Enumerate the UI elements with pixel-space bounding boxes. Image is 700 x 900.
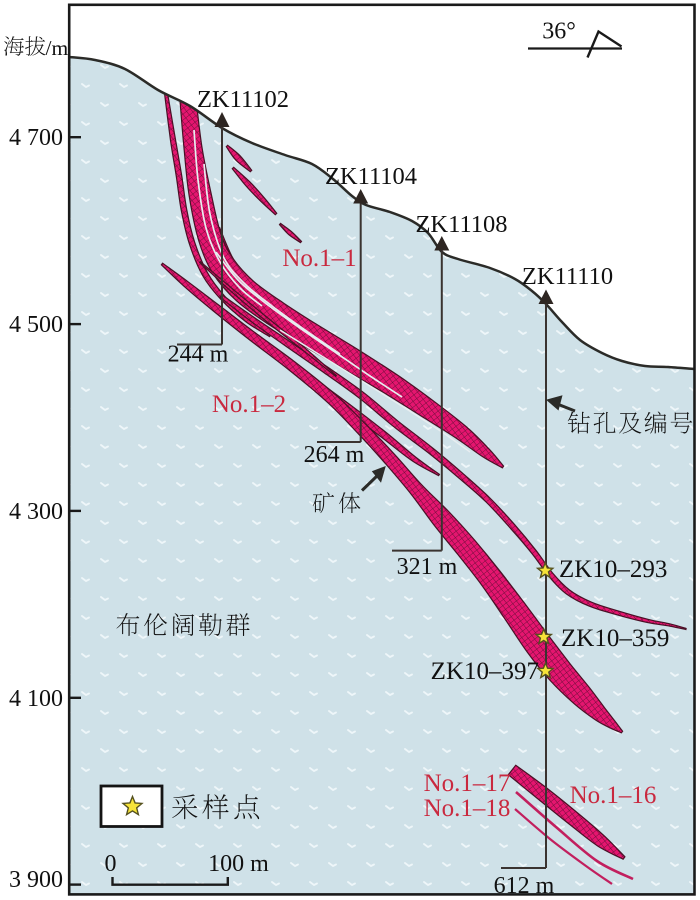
svg-text:264 m: 264 m (304, 442, 365, 468)
svg-text:4 300: 4 300 (9, 499, 63, 525)
svg-text:ZK10–359: ZK10–359 (561, 625, 669, 652)
svg-text:36°: 36° (542, 19, 576, 45)
svg-text:No.1–1: No.1–1 (282, 245, 356, 272)
svg-text:ZK10–293: ZK10–293 (559, 556, 667, 583)
svg-text:ZK11102: ZK11102 (197, 86, 289, 113)
svg-text:ZK11110: ZK11110 (522, 263, 613, 290)
svg-text:244 m: 244 m (168, 342, 229, 368)
svg-text:ZK11108: ZK11108 (415, 211, 507, 238)
svg-text:/m: /m (46, 36, 69, 60)
svg-text:No.1–18: No.1–18 (424, 795, 511, 822)
svg-text:4 500: 4 500 (9, 312, 63, 338)
svg-text:No.1–2: No.1–2 (212, 391, 286, 418)
svg-text:ZK10–397: ZK10–397 (431, 658, 539, 685)
svg-text:0: 0 (105, 851, 117, 877)
svg-text:No.1–16: No.1–16 (570, 782, 657, 809)
svg-text:321 m: 321 m (397, 554, 458, 580)
svg-text:3 900: 3 900 (9, 867, 63, 893)
svg-text:100 m: 100 m (208, 851, 269, 877)
svg-text:ZK11104: ZK11104 (325, 163, 417, 190)
svg-text:No.1–17: No.1–17 (424, 770, 511, 797)
svg-text:4 700: 4 700 (9, 125, 63, 151)
svg-text:4 100: 4 100 (9, 686, 63, 712)
